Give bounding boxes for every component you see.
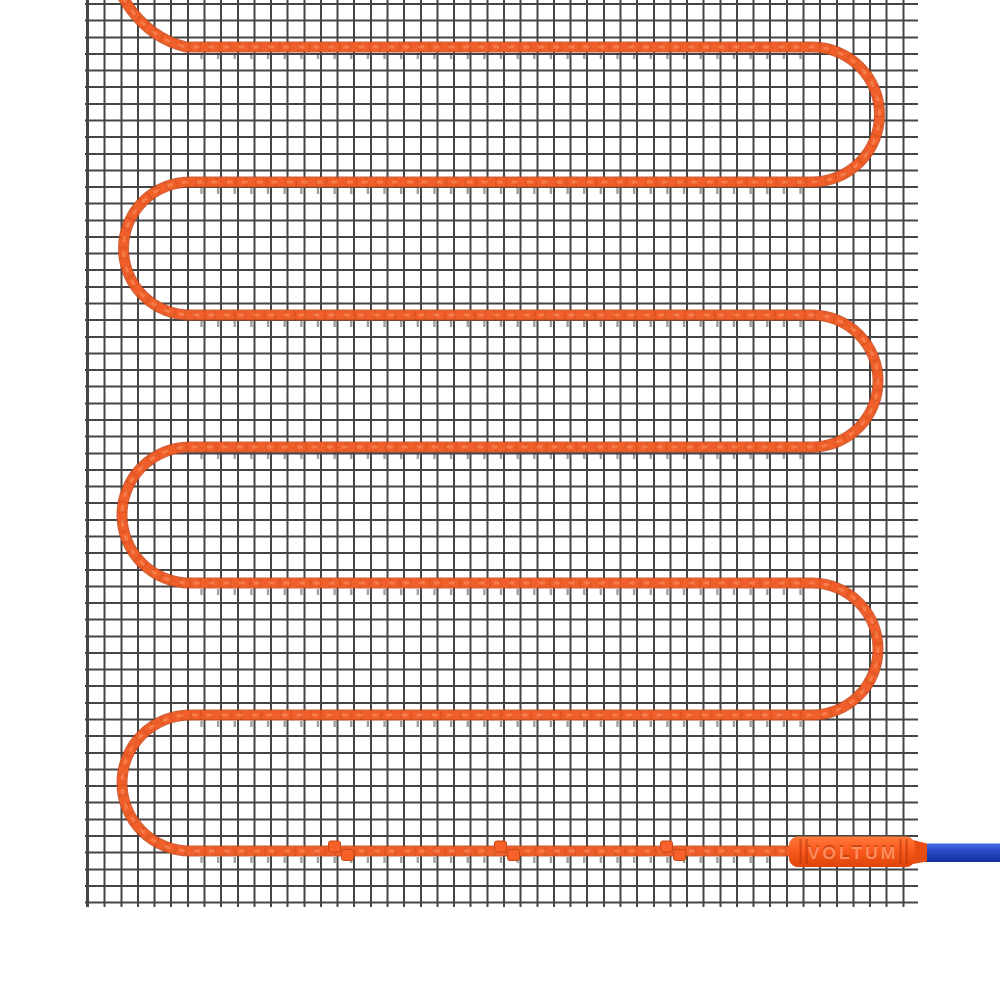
heating-cable-core: [116, 0, 880, 851]
brand-label: VOLTUM: [808, 843, 899, 863]
heating-mat-overlay: VOLTUM VOLTUM: [0, 0, 1000, 1000]
connector-tip: [913, 840, 927, 864]
splice-connector: VOLTUM VOLTUM: [789, 837, 927, 868]
heating-cable-outline: [116, 0, 880, 851]
heating-cable-highlight: [116, 0, 880, 851]
heating-cable-twist-texture: [116, 0, 880, 851]
heating-cable: [116, 0, 880, 851]
heating-mat-scene: VOLTUM VOLTUM: [0, 0, 1000, 1000]
